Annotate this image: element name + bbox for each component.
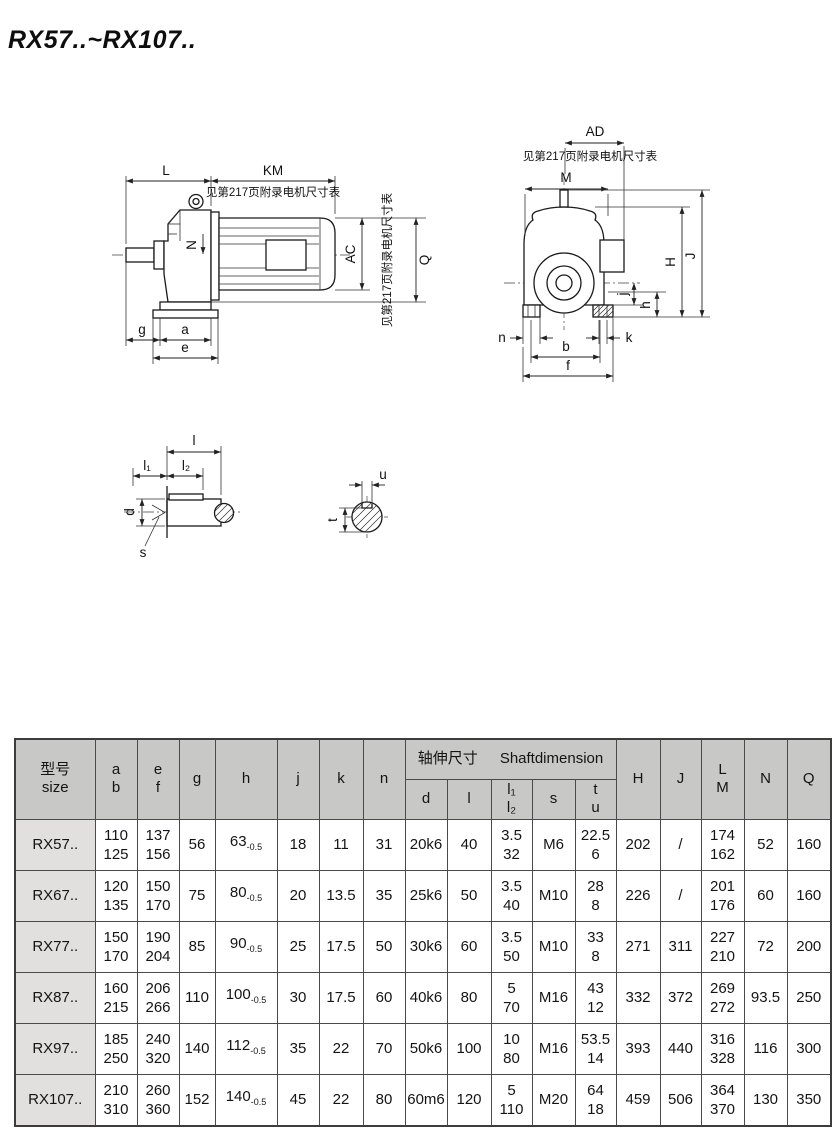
col-header-tu: t u xyxy=(575,779,616,819)
cell-l: 80 xyxy=(447,972,491,1023)
cell-J: 311 xyxy=(660,921,701,972)
cell-ab: 110125 xyxy=(95,819,137,870)
input-shaft-stub xyxy=(560,190,568,207)
cell-tu: 338 xyxy=(575,921,616,972)
cell-j: 45 xyxy=(277,1074,319,1126)
cell-g: 75 xyxy=(179,870,215,921)
cell-n: 50 xyxy=(363,921,405,972)
cell-LM: 174162 xyxy=(701,819,744,870)
col-header-d: d xyxy=(405,779,447,819)
cell-model: RX57.. xyxy=(15,819,95,870)
cell-d: 40k6 xyxy=(405,972,447,1023)
cell-J: 506 xyxy=(660,1074,701,1126)
col-group-shaft-dimension: 轴伸尺寸 Shaftdimension xyxy=(405,739,616,779)
terminal-box-front xyxy=(600,240,624,272)
cell-s: M10 xyxy=(532,921,575,972)
cell-d: 30k6 xyxy=(405,921,447,972)
cell-h: 100-0.5 xyxy=(215,972,277,1023)
table-row: RX97..185250240320140112-0.535227050k610… xyxy=(15,1023,831,1074)
cell-LM: 201176 xyxy=(701,870,744,921)
dim-label-J: J xyxy=(683,253,698,260)
cell-l12: 1080 xyxy=(491,1023,532,1074)
cell-tu: 22.56 xyxy=(575,819,616,870)
cell-l12: 3.550 xyxy=(491,921,532,972)
col-header-g: g xyxy=(179,739,215,819)
cell-ab: 120135 xyxy=(95,870,137,921)
cell-n: 35 xyxy=(363,870,405,921)
cell-model: RX87.. xyxy=(15,972,95,1023)
col-header-ab: a b xyxy=(95,739,137,819)
cell-k: 13.5 xyxy=(319,870,363,921)
table-row: RX77..1501701902048590-0.52517.55030k660… xyxy=(15,921,831,972)
cell-k: 22 xyxy=(319,1074,363,1126)
col-header-Q: Q xyxy=(787,739,831,819)
dim-label-M: M xyxy=(560,170,571,185)
cell-tu: 6418 xyxy=(575,1074,616,1126)
cell-tu: 4312 xyxy=(575,972,616,1023)
cell-h: 80-0.5 xyxy=(215,870,277,921)
motor-note-front: 见第217页附录电机尺寸表 xyxy=(523,149,658,163)
col-header-H: H xyxy=(616,739,660,819)
cell-j: 35 xyxy=(277,1023,319,1074)
cell-ab: 210310 xyxy=(95,1074,137,1126)
table-body: RX57..1101251371565663-0.518113120k6403.… xyxy=(15,819,831,1126)
dim-label-l: l xyxy=(193,433,196,448)
dim-label-f: f xyxy=(566,358,570,373)
dim-label-k: k xyxy=(626,330,633,345)
col-header-J: J xyxy=(660,739,701,819)
cell-N: 130 xyxy=(744,1074,787,1126)
cell-Q: 300 xyxy=(787,1023,831,1074)
col-header-j: j xyxy=(277,739,319,819)
dim-label-u: u xyxy=(379,467,387,482)
dim-label-KM: KM xyxy=(263,163,283,178)
dim-label-L: L xyxy=(162,163,170,178)
key xyxy=(169,494,203,500)
cell-H: 202 xyxy=(616,819,660,870)
col-header-model-en: size xyxy=(16,779,95,797)
cell-l12: 3.532 xyxy=(491,819,532,870)
cell-h: 140-0.5 xyxy=(215,1074,277,1126)
cell-N: 116 xyxy=(744,1023,787,1074)
cell-LM: 227210 xyxy=(701,921,744,972)
cell-ab: 160215 xyxy=(95,972,137,1023)
cell-J: / xyxy=(660,819,701,870)
cell-model: RX77.. xyxy=(15,921,95,972)
cell-d: 60m6 xyxy=(405,1074,447,1126)
output-shaft xyxy=(126,248,154,262)
cell-h: 90-0.5 xyxy=(215,921,277,972)
cell-g: 110 xyxy=(179,972,215,1023)
eyebolt-icon xyxy=(189,195,203,209)
catalog-page: { "page": { "title": "RX57..~RX107.." },… xyxy=(0,0,840,1140)
cell-ef: 190204 xyxy=(137,921,179,972)
shaft-body xyxy=(167,499,221,526)
cell-N: 60 xyxy=(744,870,787,921)
cell-LM: 364370 xyxy=(701,1074,744,1126)
cell-n: 80 xyxy=(363,1074,405,1126)
cell-N: 52 xyxy=(744,819,787,870)
cell-j: 20 xyxy=(277,870,319,921)
dim-label-b: b xyxy=(562,339,570,354)
side-view-drawing: L KM 见第217页附录电机尺寸表 AC Q 见第217页附录电机尺寸表 N … xyxy=(108,156,443,401)
cell-model: RX67.. xyxy=(15,870,95,921)
cell-H: 332 xyxy=(616,972,660,1023)
shaft-dim-label-cn: 轴伸尺寸 xyxy=(418,750,478,768)
cell-l12: 570 xyxy=(491,972,532,1023)
cell-Q: 200 xyxy=(787,921,831,972)
col-header-model: 型号 size xyxy=(15,739,95,819)
shaft-detail-drawing: d s l l₁ l₂ u t xyxy=(118,424,408,584)
cell-n: 70 xyxy=(363,1023,405,1074)
cell-g: 152 xyxy=(179,1074,215,1126)
dim-label-AD: AD xyxy=(586,124,605,139)
dim-label-e: e xyxy=(181,340,189,355)
dim-label-l1: l₁ xyxy=(143,458,151,473)
col-header-N: N xyxy=(744,739,787,819)
dim-label-d: d xyxy=(122,508,137,516)
cell-N: 93.5 xyxy=(744,972,787,1023)
cell-j: 25 xyxy=(277,921,319,972)
cell-j: 30 xyxy=(277,972,319,1023)
cell-k: 17.5 xyxy=(319,921,363,972)
dim-label-t: t xyxy=(325,518,340,522)
dim-label-h: h xyxy=(638,301,653,309)
cell-Q: 350 xyxy=(787,1074,831,1126)
cell-tu: 288 xyxy=(575,870,616,921)
cell-ef: 260360 xyxy=(137,1074,179,1126)
cell-J: 440 xyxy=(660,1023,701,1074)
cell-ef: 150170 xyxy=(137,870,179,921)
cell-d: 25k6 xyxy=(405,870,447,921)
motor-note: 见第217页附录电机尺寸表 xyxy=(206,185,341,199)
table-row: RX57..1101251371565663-0.518113120k6403.… xyxy=(15,819,831,870)
cell-d: 20k6 xyxy=(405,819,447,870)
cell-g: 85 xyxy=(179,921,215,972)
front-view-drawing: AD 见第217页附录电机尺寸表 M j h H J n k b f xyxy=(478,116,768,406)
dim-label-a: a xyxy=(181,322,189,337)
cell-LM: 316328 xyxy=(701,1023,744,1074)
cell-l: 120 xyxy=(447,1074,491,1126)
cell-d: 50k6 xyxy=(405,1023,447,1074)
table-row: RX67..1201351501707580-0.52013.53525k650… xyxy=(15,870,831,921)
dim-label-N: N xyxy=(184,240,199,250)
cell-s: M6 xyxy=(532,819,575,870)
dim-label-Q: Q xyxy=(417,255,432,266)
col-header-model-cn: 型号 xyxy=(16,761,95,779)
dim-label-s: s xyxy=(140,545,147,560)
cell-ab: 185250 xyxy=(95,1023,137,1074)
cell-l: 60 xyxy=(447,921,491,972)
cell-Q: 160 xyxy=(787,819,831,870)
dim-label-g: g xyxy=(138,322,146,337)
cell-LM: 269272 xyxy=(701,972,744,1023)
cell-H: 271 xyxy=(616,921,660,972)
cell-H: 226 xyxy=(616,870,660,921)
dim-label-AC: AC xyxy=(343,244,358,263)
cell-k: 11 xyxy=(319,819,363,870)
col-header-s: s xyxy=(532,779,575,819)
cell-ef: 137156 xyxy=(137,819,179,870)
dim-label-H: H xyxy=(663,257,678,267)
cell-h: 63-0.5 xyxy=(215,819,277,870)
col-header-l12: l₁ l₂ xyxy=(491,779,532,819)
cell-s: M16 xyxy=(532,1023,575,1074)
cell-h: 112-0.5 xyxy=(215,1023,277,1074)
table-row: RX87..160215206266110100-0.53017.56040k6… xyxy=(15,972,831,1023)
dimension-table: 型号 size a b e f g h j k n 轴伸尺寸 Shaftdime… xyxy=(14,738,832,1127)
shaft-cross-section xyxy=(352,502,382,532)
cell-l: 100 xyxy=(447,1023,491,1074)
cell-tu: 53.514 xyxy=(575,1023,616,1074)
cell-k: 22 xyxy=(319,1023,363,1074)
cell-model: RX107.. xyxy=(15,1074,95,1126)
col-header-k: k xyxy=(319,739,363,819)
dim-label-j: j xyxy=(615,293,630,297)
cell-k: 17.5 xyxy=(319,972,363,1023)
dim-label-n: n xyxy=(498,330,506,345)
left-foot xyxy=(523,305,540,317)
cell-Q: 160 xyxy=(787,870,831,921)
terminal-box xyxy=(266,240,306,270)
cell-l12: 5110 xyxy=(491,1074,532,1126)
cell-s: M20 xyxy=(532,1074,575,1126)
cell-l: 50 xyxy=(447,870,491,921)
col-header-ef: e f xyxy=(137,739,179,819)
cell-s: M16 xyxy=(532,972,575,1023)
cell-ab: 150170 xyxy=(95,921,137,972)
cell-ef: 240320 xyxy=(137,1023,179,1074)
cell-H: 459 xyxy=(616,1074,660,1126)
cell-Q: 250 xyxy=(787,972,831,1023)
cell-l12: 3.540 xyxy=(491,870,532,921)
dim-label-l2: l₂ xyxy=(182,458,190,473)
cell-n: 60 xyxy=(363,972,405,1023)
cell-g: 140 xyxy=(179,1023,215,1074)
cell-J: 372 xyxy=(660,972,701,1023)
shaft-end-section xyxy=(215,504,234,523)
shaft-dim-label-en: Shaftdimension xyxy=(500,750,603,768)
output-bore xyxy=(534,253,594,313)
col-header-h: h xyxy=(215,739,277,819)
cell-ef: 206266 xyxy=(137,972,179,1023)
col-header-n: n xyxy=(363,739,405,819)
cell-s: M10 xyxy=(532,870,575,921)
cell-N: 72 xyxy=(744,921,787,972)
cell-l: 40 xyxy=(447,819,491,870)
cell-j: 18 xyxy=(277,819,319,870)
cell-J: / xyxy=(660,870,701,921)
table-row: RX107..210310260360152140-0.545228060m61… xyxy=(15,1074,831,1126)
cell-n: 31 xyxy=(363,819,405,870)
motor-note-vertical: 见第217页附录电机尺寸表 xyxy=(380,192,394,327)
col-header-LM: L M xyxy=(701,739,744,819)
cell-model: RX97.. xyxy=(15,1023,95,1074)
cell-H: 393 xyxy=(616,1023,660,1074)
page-title: RX57..~RX107.. xyxy=(8,26,196,55)
cell-g: 56 xyxy=(179,819,215,870)
col-header-l: l xyxy=(447,779,491,819)
